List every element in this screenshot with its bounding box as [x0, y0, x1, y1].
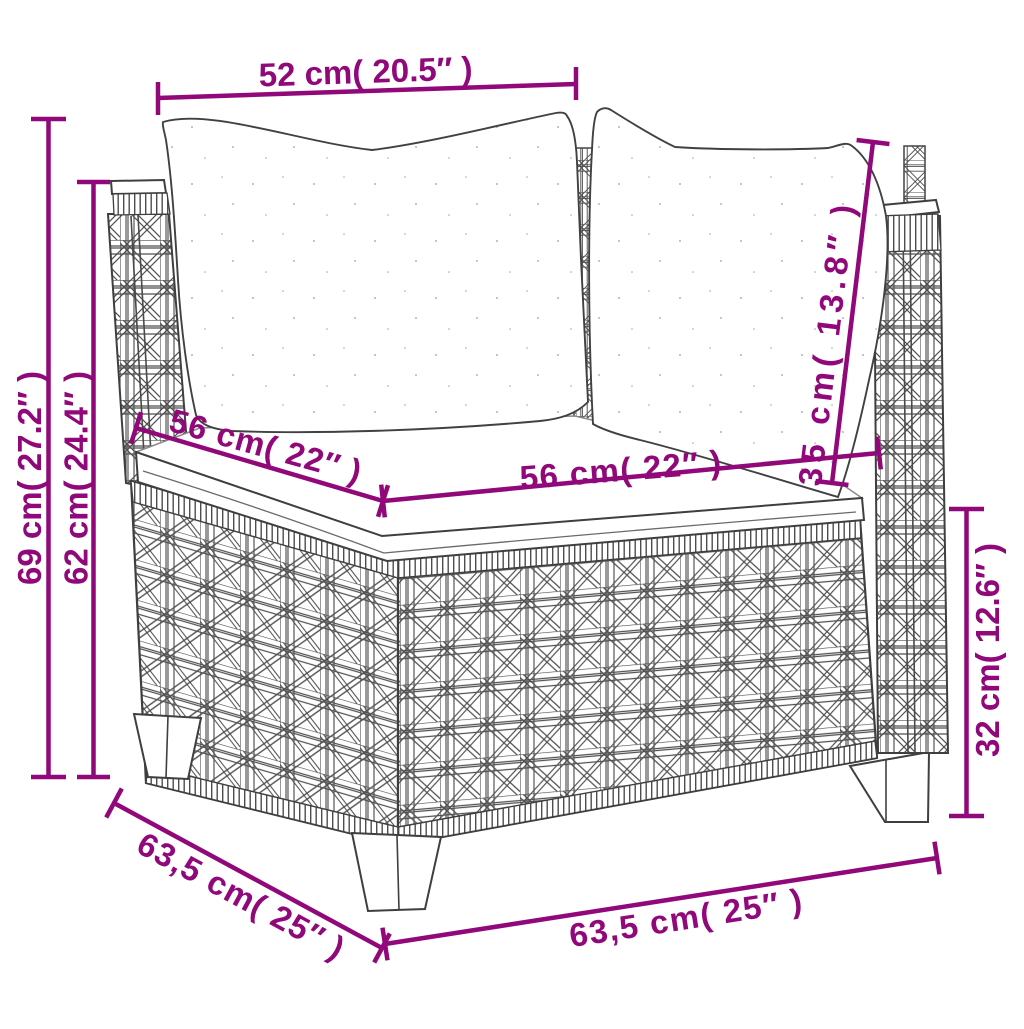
- svg-text:69 cm( 27.2″ ): 69 cm( 27.2″ ): [11, 371, 48, 585]
- svg-text:52 cm( 20.5″ ): 52 cm( 20.5″ ): [258, 49, 473, 93]
- svg-text:32 cm( 12.6″ ): 32 cm( 12.6″ ): [969, 543, 1006, 757]
- svg-text:62 cm( 24.4″ ): 62 cm( 24.4″ ): [58, 371, 95, 585]
